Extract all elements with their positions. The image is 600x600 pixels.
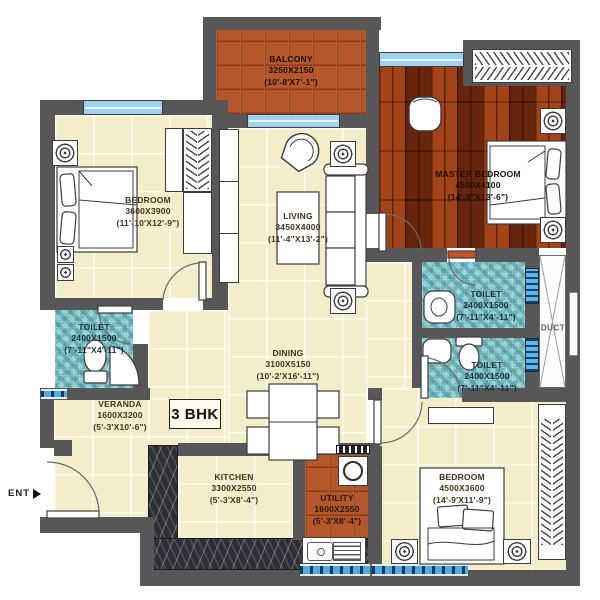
room-dim: 3250X2150 xyxy=(264,65,318,76)
bedroom3-label: BEDROOM 4500X3600 (14'-9'X11'-9") xyxy=(433,472,491,506)
room-dim: 4500X4100 xyxy=(435,180,520,191)
utility-label: UTILITY 1600X2550 (5'-3'X8'-4") xyxy=(313,493,362,527)
living-chair xyxy=(277,127,325,176)
room-name: TOILET xyxy=(64,322,124,333)
room-ft: (10'-2'X16'-11") xyxy=(257,371,320,382)
veranda-label: VERANDA 1600X3200 (5'-3'X10'-6") xyxy=(93,399,147,433)
fan-living xyxy=(330,141,356,167)
entrance-marker: ENT xyxy=(8,488,41,499)
living-sofa xyxy=(324,164,368,297)
light-bedroom1-a xyxy=(57,246,74,263)
room-dim: 1600X3200 xyxy=(93,410,147,421)
toilet-a-fixtures xyxy=(424,291,455,323)
room-dim: 2400X1500 xyxy=(456,300,516,311)
room-name: DINING xyxy=(257,348,320,359)
toilet-b-label: TOILET 2400X1500 (7'-11"X4'-11") xyxy=(457,360,517,394)
plan-type-text: 3 BHK xyxy=(171,406,219,423)
master-bedroom-label: MASTER BEDROOM 4500X4100 (14'-9"X13'-6") xyxy=(435,169,520,203)
kitchen-sink xyxy=(302,537,366,564)
room-ft: (14'-9"X13'-6") xyxy=(435,192,520,203)
room-name: MASTER BEDROOM xyxy=(435,169,520,180)
room-dim: 1600X2550 xyxy=(313,504,362,515)
master-chair xyxy=(409,97,441,131)
room-dim: 3450X4000 xyxy=(268,222,328,233)
room-ft: (11'-4"X13'-2") xyxy=(268,234,328,245)
fan-bedroom1 xyxy=(52,140,78,166)
room-name: LIVING xyxy=(268,211,328,222)
room-ft: (5'-3'X10'-6") xyxy=(93,422,147,433)
toilet-left-label: TOILET 2400X1500 (7'-11"X4'-11") xyxy=(64,322,124,356)
room-name: BEDROOM xyxy=(433,472,491,483)
room-dim: 3600X3900 xyxy=(117,206,180,217)
balcony-label: BALCONY 3250X2150 (10'-8'X7'-1") xyxy=(264,54,318,88)
room-ft: (7'-11"X4'-11") xyxy=(456,312,516,323)
fan-bedroom3-right xyxy=(503,539,531,564)
living-label: LIVING 3450X4000 (11'-4"X13'-2") xyxy=(268,211,328,245)
duct-label: DUCT xyxy=(541,324,565,333)
toilet-a-label: TOILET 2400X1500 (7'-11"X4'-11") xyxy=(456,289,516,323)
fan-dining xyxy=(330,288,356,314)
room-dim: 3100X5150 xyxy=(257,359,320,370)
room-ft: (7'-11"X4'-11") xyxy=(457,383,517,394)
washing-machine xyxy=(338,456,368,486)
fan-master-bottom xyxy=(540,217,566,243)
dining-set xyxy=(247,384,339,460)
plan-type-badge: 3 BHK xyxy=(169,399,221,429)
room-ft: (7'-11"X4'-11") xyxy=(64,345,124,356)
bedroom1-label: BEDROOM 3600X3900 (11'-10'X12'-9") xyxy=(117,195,180,229)
entrance-arrow-icon xyxy=(33,489,41,499)
fan-bedroom3-left xyxy=(391,539,418,564)
room-dim: 4500X3600 xyxy=(433,483,491,494)
room-dim: 2400X1500 xyxy=(457,371,517,382)
room-ft: (5'-3'X8'-4") xyxy=(313,516,362,527)
room-name: BEDROOM xyxy=(117,195,180,206)
duct-cross-icon xyxy=(540,256,565,387)
room-ft: (11'-10'X12'-9") xyxy=(117,218,180,229)
room-name: VERANDA xyxy=(93,399,147,410)
entrance-text: ENT xyxy=(8,488,30,499)
room-name: KITCHEN xyxy=(210,472,259,483)
utility-vent xyxy=(336,445,370,454)
room-dim: 3300X2550 xyxy=(210,483,259,494)
room-name: UTILITY xyxy=(313,493,362,504)
kitchen-label: KITCHEN 3300X2550 (5'-3'X8'-4") xyxy=(210,472,259,506)
room-ft: (14'-9'X11'-9") xyxy=(433,495,491,506)
floor-plan: BEDROOM 3600X3900 (11'-10'X12'-9") BALCO… xyxy=(0,0,600,600)
room-dim: 2400X1500 xyxy=(64,333,124,344)
room-ft: (5'-3'X8'-4") xyxy=(210,495,259,506)
room-ft: (10'-8'X7'-1") xyxy=(264,77,318,88)
fan-master-top xyxy=(540,108,566,134)
room-name: BALCONY xyxy=(264,54,318,65)
room-name: TOILET xyxy=(456,289,516,300)
light-bedroom1-b xyxy=(57,264,74,281)
room-name: TOILET xyxy=(457,360,517,371)
dining-label: DINING 3100X5150 (10'-2'X16'-11") xyxy=(257,348,320,382)
